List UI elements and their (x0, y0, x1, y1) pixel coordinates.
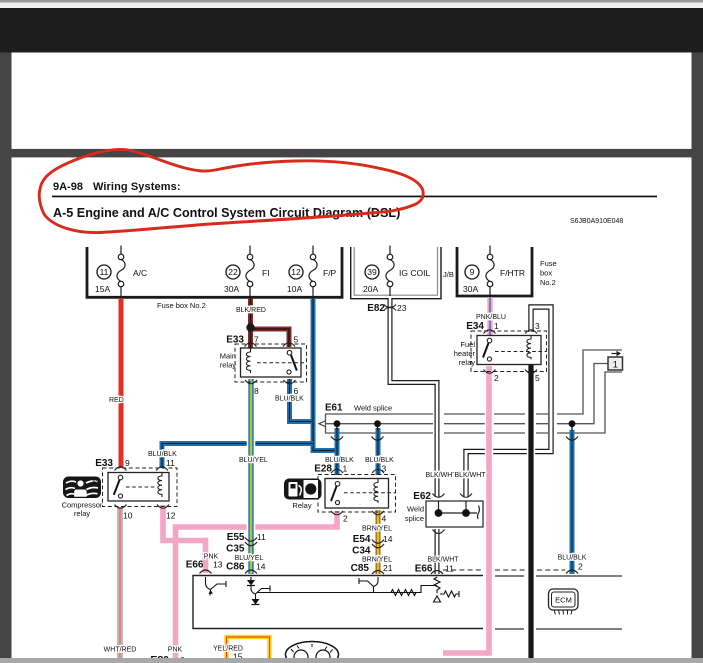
svg-text:E28: E28 (314, 464, 332, 475)
svg-text:9A-98: 9A-98 (53, 181, 83, 193)
svg-text:Main: Main (220, 352, 236, 361)
svg-text:7: 7 (254, 335, 259, 345)
svg-text:C85: C85 (351, 563, 370, 574)
svg-text:S6JB0A910E048: S6JB0A910E048 (570, 218, 623, 225)
svg-text:13: 13 (213, 560, 223, 570)
svg-text:5: 5 (535, 373, 540, 383)
svg-text:PNK/BLU: PNK/BLU (476, 314, 506, 321)
svg-text:1: 1 (343, 464, 348, 474)
svg-text:relay: relay (220, 361, 237, 370)
svg-text:5: 5 (294, 335, 299, 345)
svg-text:Fuse: Fuse (540, 259, 557, 268)
svg-text:2: 2 (494, 373, 499, 383)
svg-text:RED: RED (109, 397, 124, 404)
svg-text:3: 3 (382, 464, 387, 474)
svg-text:Relay: Relay (292, 501, 311, 510)
svg-text:Fuse box No.2: Fuse box No.2 (157, 301, 206, 310)
svg-text:21: 21 (383, 563, 393, 573)
svg-text:39: 39 (367, 267, 377, 277)
svg-text:14: 14 (256, 562, 266, 572)
svg-text:PNK: PNK (168, 647, 183, 654)
svg-text:1: 1 (613, 360, 618, 371)
svg-text:BLU/BLK: BLU/BLK (275, 396, 304, 403)
svg-text:splice: splice (405, 514, 424, 523)
svg-text:11: 11 (100, 267, 109, 277)
svg-text:BLK/WHT: BLK/WHT (454, 472, 486, 479)
svg-text:relay: relay (74, 509, 91, 518)
svg-text:C34: C34 (352, 546, 371, 557)
svg-text:8: 8 (254, 386, 259, 396)
svg-text:E34: E34 (466, 321, 484, 332)
svg-text:FI: FI (262, 268, 270, 278)
svg-text:No.2: No.2 (540, 278, 556, 287)
svg-text:BLU/BLK: BLU/BLK (558, 555, 587, 562)
svg-text:E66: E66 (186, 560, 204, 571)
svg-text:BLU/BLK: BLU/BLK (365, 457, 394, 464)
svg-text:30A: 30A (224, 284, 239, 294)
svg-text:12: 12 (166, 511, 176, 521)
svg-text:15A: 15A (95, 284, 110, 294)
svg-text:Weld splice: Weld splice (354, 404, 392, 413)
svg-text:BLU/YEL: BLU/YEL (239, 457, 268, 464)
svg-text:11: 11 (166, 458, 175, 468)
svg-text:AC: AC (92, 479, 99, 484)
svg-text:30A: 30A (463, 284, 478, 294)
svg-text:9: 9 (470, 267, 475, 277)
svg-text:10A: 10A (287, 284, 302, 294)
svg-text:20A: 20A (363, 284, 378, 294)
svg-text:F/HTR: F/HTR (500, 268, 525, 278)
svg-text:E62: E62 (413, 491, 431, 502)
svg-text:BLU/BLK: BLU/BLK (325, 457, 354, 464)
svg-text:E66: E66 (415, 564, 433, 575)
svg-text:BLK/WHT: BLK/WHT (427, 557, 459, 564)
svg-text:Weld: Weld (407, 505, 424, 514)
svg-text:IG COIL: IG COIL (399, 268, 430, 278)
svg-text:BLK/WHT: BLK/WHT (425, 472, 457, 479)
svg-text:6: 6 (294, 386, 299, 396)
svg-text:2: 2 (578, 562, 583, 572)
svg-text:BLK/RED: BLK/RED (236, 307, 266, 314)
svg-text:3: 3 (535, 321, 540, 331)
svg-text:box: box (540, 269, 552, 278)
svg-text:C35: C35 (226, 544, 245, 555)
svg-text:WHT/RED: WHT/RED (104, 647, 137, 654)
svg-text:C86: C86 (226, 562, 245, 573)
svg-text:14: 14 (383, 534, 393, 544)
svg-text:E55: E55 (227, 532, 245, 543)
svg-text:J/B: J/B (443, 270, 454, 279)
svg-text:E54: E54 (353, 534, 371, 545)
svg-text:11: 11 (257, 532, 266, 542)
svg-text:10: 10 (123, 511, 133, 521)
svg-text:9: 9 (125, 458, 130, 468)
svg-text:12: 12 (291, 267, 301, 277)
svg-text:23: 23 (397, 303, 407, 313)
svg-text:P: P (308, 485, 313, 494)
svg-text:E33: E33 (95, 458, 113, 469)
svg-text:ECM: ECM (555, 596, 572, 605)
svg-text:4: 4 (382, 514, 387, 524)
svg-text:E82: E82 (367, 303, 385, 314)
svg-text:A/C: A/C (133, 268, 147, 278)
svg-text:Fuel: Fuel (460, 340, 475, 349)
svg-text:2: 2 (343, 514, 348, 524)
svg-text:1: 1 (494, 321, 499, 331)
svg-text:Wiring Systems:: Wiring Systems: (93, 181, 181, 193)
svg-text:relay: relay (459, 358, 476, 367)
svg-text:heater: heater (454, 349, 476, 358)
svg-text:F/P: F/P (323, 268, 337, 278)
svg-text:E61: E61 (325, 403, 343, 414)
svg-text:E33: E33 (226, 335, 244, 346)
svg-text:11: 11 (445, 564, 454, 574)
svg-text:BLU/BLK: BLU/BLK (148, 451, 177, 458)
svg-text:22: 22 (228, 267, 238, 277)
svg-text:BRN/YEL: BRN/YEL (362, 526, 392, 533)
svg-text:A-5 Engine and A/C Control Sys: A-5 Engine and A/C Control System Circui… (53, 206, 400, 220)
